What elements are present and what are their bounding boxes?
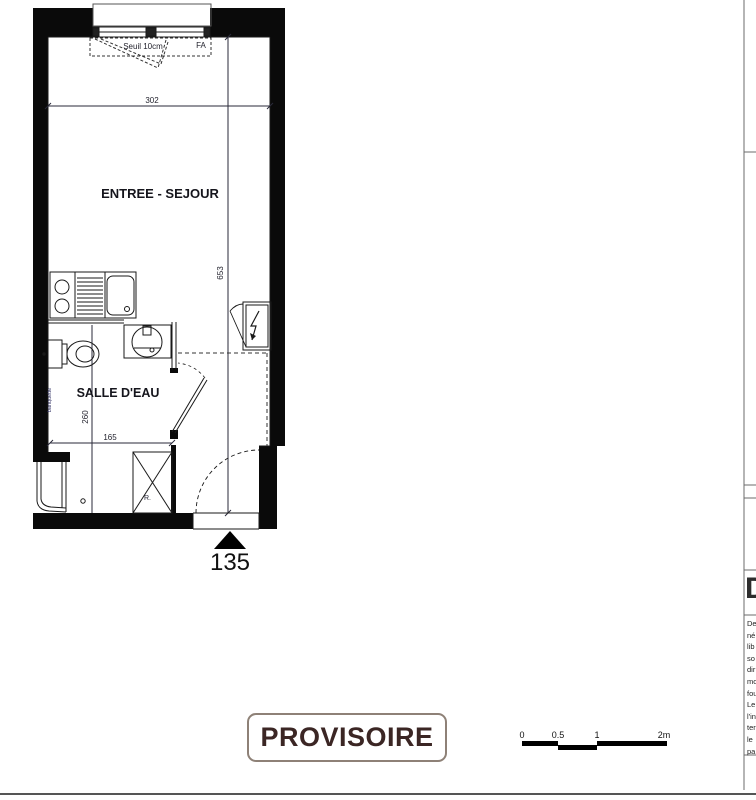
wall-bathdoor-jamb-bottom bbox=[170, 430, 178, 439]
room-label-bathroom: SALLE D'EAU bbox=[77, 386, 160, 400]
wall-left-stub bbox=[33, 452, 70, 462]
window bbox=[93, 27, 210, 37]
title-block-logo: D bbox=[745, 572, 756, 606]
balcony-ledge bbox=[93, 4, 211, 26]
note-line: le bbox=[747, 734, 756, 746]
wall-right-upper bbox=[270, 8, 285, 446]
toilet-icon bbox=[43, 340, 99, 368]
drawing-sheet: Seuil 10cm FA 302 653 260 165 ENTREE - S… bbox=[0, 0, 756, 800]
storage-label: R. bbox=[144, 495, 151, 502]
entrance-door bbox=[193, 450, 259, 529]
note-line: lib bbox=[747, 641, 756, 653]
scale-tick-0: 0 bbox=[519, 730, 524, 740]
note-line: Le bbox=[747, 699, 756, 711]
wall-bathdoor-jamb-top bbox=[170, 368, 178, 373]
wall-right-lower bbox=[259, 446, 277, 529]
note-line: mo bbox=[747, 676, 756, 688]
scale-tick-1: 1 bbox=[594, 730, 599, 740]
note-line: fou bbox=[747, 688, 756, 700]
washbasin-icon bbox=[124, 325, 171, 358]
wall-top-left bbox=[33, 8, 93, 37]
dimension-653-label: 653 bbox=[216, 266, 225, 280]
note-line: dir bbox=[747, 664, 756, 676]
cooktop-burner-icon bbox=[55, 280, 69, 294]
floor-drain-icon bbox=[81, 499, 85, 503]
drainer-icon bbox=[77, 278, 103, 314]
storage-box bbox=[133, 452, 172, 513]
provisional-stamp: PROVISOIRE bbox=[247, 713, 447, 762]
entrance-marker-icon bbox=[214, 531, 246, 549]
note-line: né bbox=[747, 630, 756, 642]
note-line: De bbox=[747, 618, 756, 630]
dimension-165-label: 165 bbox=[103, 433, 117, 442]
dimension-260-label: 260 bbox=[81, 410, 90, 424]
note-line: pa bbox=[747, 746, 756, 758]
bathroom-door bbox=[172, 363, 207, 433]
title-block-notes: De né lib so dir mo fou Le l'in ter le p… bbox=[747, 618, 756, 757]
floor-plan: Seuil 10cm FA 302 653 260 165 ENTREE - S… bbox=[0, 0, 756, 800]
bench-label: banquette bbox=[47, 388, 53, 412]
sink-drain-icon bbox=[125, 307, 130, 312]
dimension-302 bbox=[45, 103, 273, 109]
note-line: so bbox=[747, 653, 756, 665]
scale-bar: 0 0.5 1 2m bbox=[519, 730, 670, 750]
threshold-label: Seuil 10cm bbox=[123, 42, 163, 51]
scale-tick-05: 0.5 bbox=[552, 730, 565, 740]
note-line: ter bbox=[747, 722, 756, 734]
lightning-arrow-icon bbox=[250, 333, 256, 340]
kitchenette bbox=[50, 272, 136, 318]
room-label-living: ENTREE - SEJOUR bbox=[101, 186, 219, 201]
dimension-302-label: 302 bbox=[145, 96, 159, 105]
wall-bottom bbox=[33, 513, 193, 529]
shower-bench bbox=[37, 462, 85, 512]
note-line: l'in bbox=[747, 711, 756, 723]
electrical-panel bbox=[230, 302, 271, 350]
cooktop-burner-icon bbox=[55, 299, 69, 313]
wall-left bbox=[33, 8, 48, 452]
scale-tick-2m: 2m bbox=[658, 730, 671, 740]
unit-number: 135 bbox=[210, 549, 250, 576]
window-type-label: FA bbox=[196, 41, 206, 50]
